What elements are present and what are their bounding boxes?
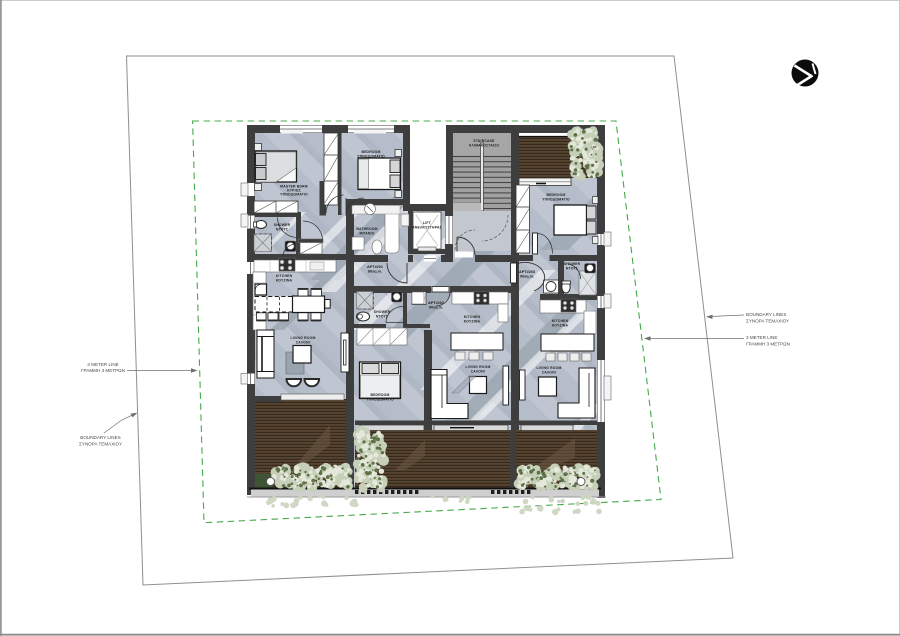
svg-text:ΝΤΟΥΣ: ΝΤΟΥΣ	[376, 315, 388, 319]
svg-text:ΝΤΟΥΣ: ΝΤΟΥΣ	[566, 267, 578, 271]
svg-text:ΥΠΝΟΔΩΜΑΤΙΟ: ΥΠΝΟΔΩΜΑΤΙΟ	[366, 398, 394, 402]
svg-text:3 METER LINE: 3 METER LINE	[87, 362, 118, 367]
svg-text:BATHROOM: BATHROOM	[356, 227, 377, 231]
svg-text:ΚΟΥΖΙΝΑ: ΚΟΥΖΙΝΑ	[276, 279, 293, 283]
svg-text:ΚΟΥΖΙΝΑ: ΚΟΥΖΙΝΑ	[464, 320, 481, 324]
svg-text:90sq.m.: 90sq.m.	[429, 306, 443, 310]
svg-text:SHOWER: SHOWER	[564, 262, 581, 266]
svg-text:3 METER LINE: 3 METER LINE	[746, 335, 777, 340]
svg-text:ΚΟΥΖΙΝΑ: ΚΟΥΖΙΝΑ	[552, 324, 569, 328]
svg-text:KITCHEN: KITCHEN	[464, 315, 481, 319]
svg-text:LIVING ROOM: LIVING ROOM	[291, 336, 316, 340]
svg-text:ΣΑΛΟΝΙ: ΣΑΛΟΝΙ	[471, 370, 485, 374]
svg-text:KITCHEN: KITCHEN	[276, 274, 293, 278]
svg-text:ΥΠΝΟΔΩΜΑΤΙΟ: ΥΠΝΟΔΩΜΑΤΙΟ	[542, 198, 570, 202]
svg-text:ΣΑΛΟΝΙ: ΣΑΛΟΝΙ	[542, 371, 556, 375]
svg-text:LIVING ROOM: LIVING ROOM	[466, 365, 491, 369]
svg-text:STAIRCASE: STAIRCASE	[473, 139, 495, 143]
svg-text:BOUNDARY LINES: BOUNDARY LINES	[80, 435, 120, 440]
svg-text:APT#202: APT#202	[428, 301, 444, 305]
svg-text:BEDROOM: BEDROOM	[546, 193, 565, 197]
svg-text:BEDROOM: BEDROOM	[370, 393, 389, 397]
svg-text:ΥΠΝΟΔΩΜΑΤΙΟ: ΥΠΝΟΔΩΜΑΤΙΟ	[280, 193, 308, 197]
svg-text:BEDROOM: BEDROOM	[361, 150, 380, 154]
svg-text:ΜΠΑΝΙΟ: ΜΠΑΝΙΟ	[360, 232, 375, 236]
svg-text:ΓΡΑΜΜΗ 3 ΜΕΤΡΩΝ: ΓΡΑΜΜΗ 3 ΜΕΤΡΩΝ	[81, 368, 125, 373]
svg-text:APT#201: APT#201	[367, 265, 383, 269]
svg-text:BOUNDARY LINES: BOUNDARY LINES	[746, 312, 786, 317]
svg-text:ΣΑΛΟΝΙ: ΣΑΛΟΝΙ	[296, 341, 310, 345]
svg-text:ΥΠΝΟΔΩΜΑΤΙΟ: ΥΠΝΟΔΩΜΑΤΙΟ	[357, 155, 385, 159]
svg-text:ΑΝΕΛΚΥΣΤΗΡΑΣ: ΑΝΕΛΚΥΣΤΗΡΑΣ	[412, 226, 442, 230]
svg-text:ΓΡΑΜΜΗ 3 ΜΕΤΡΩΝ: ΓΡΑΜΜΗ 3 ΜΕΤΡΩΝ	[746, 342, 790, 347]
svg-text:LIFT: LIFT	[423, 221, 432, 225]
svg-text:SHOWER: SHOWER	[274, 223, 291, 227]
svg-text:ΣΥΝΟΡΑ ΤΕΜΑΧΙΟΥ: ΣΥΝΟΡΑ ΤΕΜΑΧΙΟΥ	[746, 319, 789, 324]
svg-text:90sq.m.: 90sq.m.	[520, 275, 534, 279]
svg-text:APT#203: APT#203	[519, 270, 535, 274]
svg-text:SHOWER: SHOWER	[374, 310, 391, 314]
svg-text:LIVING ROOM: LIVING ROOM	[537, 366, 562, 370]
svg-text:ΝΤΟΥΣ: ΝΤΟΥΣ	[276, 228, 288, 232]
svg-text:KITCHEN: KITCHEN	[552, 319, 569, 323]
svg-text:ΣΥΝΟΡΑ ΤΕΜΑΧΙΟΥ: ΣΥΝΟΡΑ ΤΕΜΑΧΙΟΥ	[79, 442, 122, 447]
svg-text:80sq.m.: 80sq.m.	[368, 270, 382, 274]
svg-text:ΚΛΙΜΑΚΟΣΤΑΣΙΟ: ΚΛΙΜΑΚΟΣΤΑΣΙΟ	[469, 144, 500, 148]
